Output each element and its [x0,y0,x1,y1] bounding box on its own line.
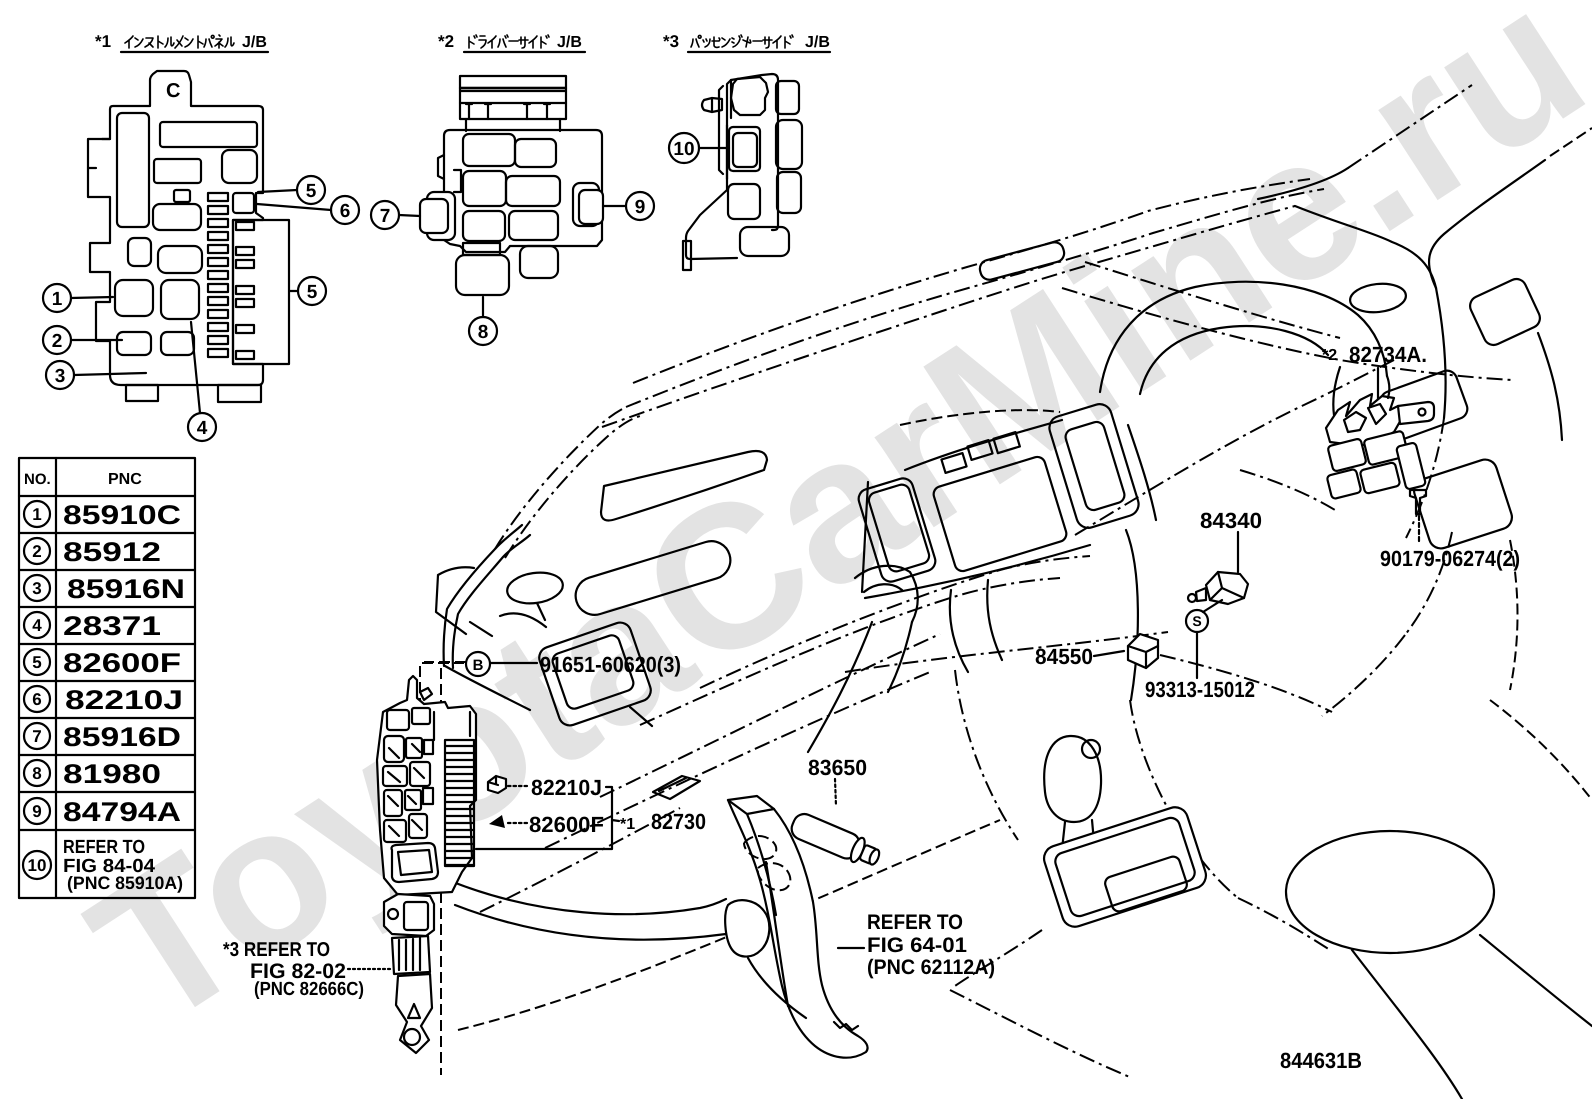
svg-text:S: S [1192,613,1201,629]
svg-text:2: 2 [52,331,63,352]
svg-text:84550: 84550 [1035,644,1093,669]
svg-text:9: 9 [635,197,646,218]
svg-text:FIG 64-01: FIG 64-01 [867,934,967,957]
svg-text:NO.: NO. [24,471,51,488]
svg-text:*2: *2 [438,32,454,51]
svg-text:1: 1 [52,289,63,310]
svg-text:*1: *1 [620,816,635,833]
svg-text:82210J: 82210J [531,775,602,800]
svg-text:*3: *3 [663,32,679,51]
svg-text:7: 7 [32,727,41,746]
svg-text:REFER TO: REFER TO [867,911,963,934]
svg-text:90179-06274(2): 90179-06274(2) [1380,546,1520,571]
svg-text:5: 5 [306,181,317,202]
svg-text:85912: 85912 [63,537,161,567]
svg-text:81980: 81980 [63,759,161,789]
svg-text:9: 9 [32,802,41,821]
svg-text:5: 5 [307,282,318,303]
svg-text:10: 10 [673,139,694,160]
svg-text:J/B: J/B [242,34,267,51]
svg-text:C: C [166,80,180,102]
svg-text:82210J: 82210J [65,685,183,715]
svg-text:85910C: 85910C [63,500,181,530]
svg-text:J/B: J/B [805,34,830,51]
svg-text:7: 7 [380,206,391,227]
svg-text:82600F: 82600F [529,812,604,837]
svg-text:REFER TO: REFER TO [63,837,145,858]
svg-text:85916N: 85916N [67,574,185,604]
svg-text:82730: 82730 [651,809,706,834]
svg-text:*1: *1 [95,32,111,51]
svg-text:8: 8 [32,764,41,783]
svg-text:5: 5 [32,653,41,672]
svg-text:4: 4 [32,616,42,635]
svg-text:6: 6 [340,201,351,222]
svg-text:B: B [473,657,484,674]
svg-text:82734A.: 82734A. [1349,342,1427,367]
svg-text:(PNC 62112A): (PNC 62112A) [867,956,995,979]
svg-text:83650: 83650 [808,755,867,780]
svg-text:6: 6 [32,690,41,709]
svg-text:2: 2 [32,542,41,561]
svg-text:(PNC 85910A): (PNC 85910A) [67,873,183,893]
svg-text:85916D: 85916D [63,722,181,752]
svg-text:4: 4 [197,418,208,439]
svg-text:82600F: 82600F [63,648,181,678]
svg-text:*2: *2 [1322,347,1337,364]
svg-text:J/B: J/B [557,34,582,51]
svg-text:1: 1 [32,505,41,524]
svg-text:PNC: PNC [108,471,142,488]
svg-text:8: 8 [478,322,489,343]
svg-text:3: 3 [32,579,41,598]
svg-text:84794A: 84794A [63,797,181,827]
svg-text:93313-15012: 93313-15012 [1145,677,1255,702]
svg-text:91651-60620(3): 91651-60620(3) [540,652,681,677]
svg-text:28371: 28371 [63,611,161,641]
svg-text:844631B: 844631B [1280,1048,1362,1073]
svg-text:10: 10 [28,856,47,875]
svg-text:84340: 84340 [1200,508,1262,533]
svg-text:3: 3 [55,366,66,387]
svg-text:(PNC 82666C): (PNC 82666C) [254,979,364,1000]
svg-text:*3 REFER TO: *3 REFER TO [223,939,330,961]
